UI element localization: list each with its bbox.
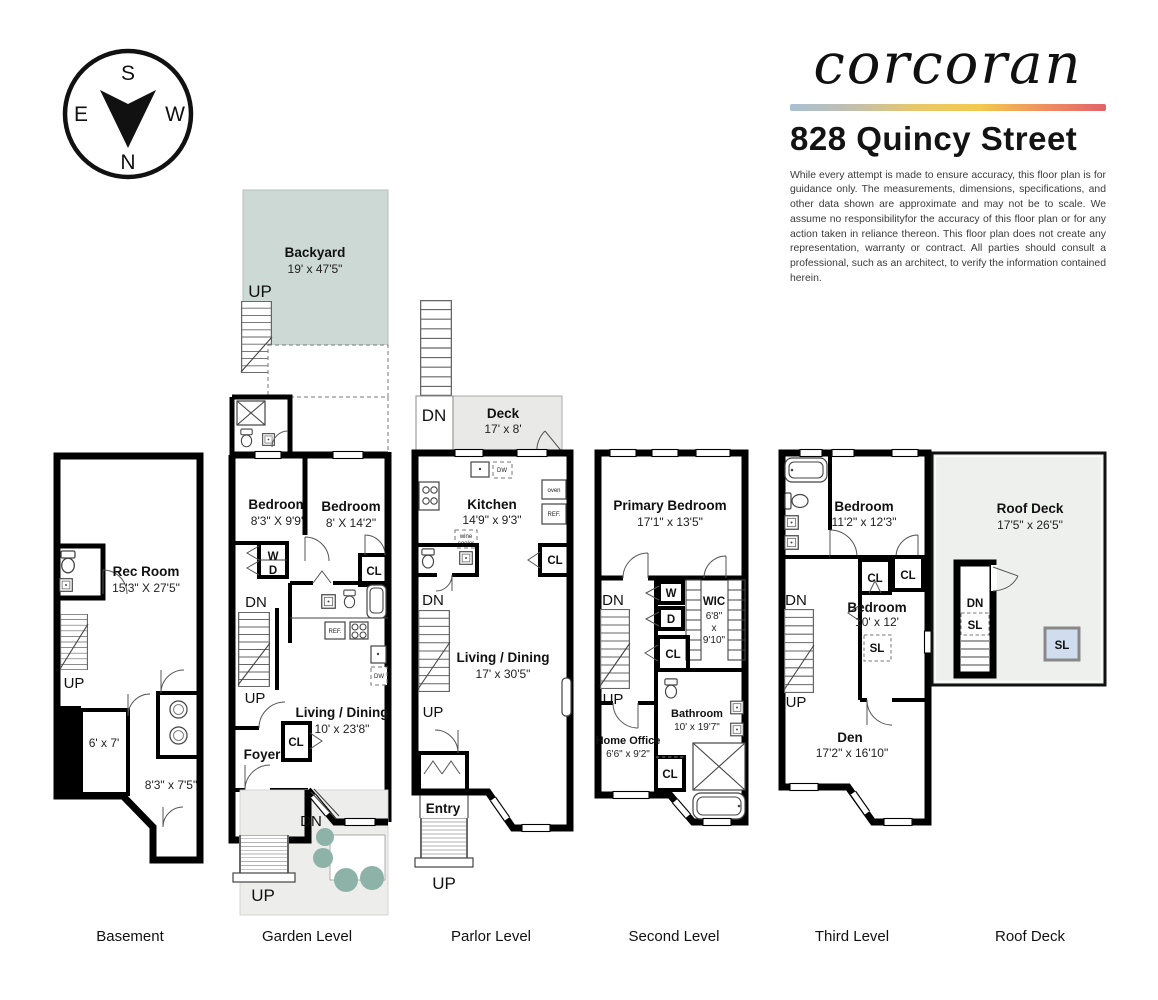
room-label-foyer: Foyer bbox=[244, 747, 282, 762]
room-dims-rec-room: 15'3" X 27'5" bbox=[112, 581, 180, 595]
room-dims-living: 10' x 23'8" bbox=[315, 722, 370, 736]
window bbox=[800, 450, 822, 457]
room-dims-83x75: 8'3" x 7'5" bbox=[145, 778, 197, 792]
compass-west: W bbox=[165, 103, 185, 126]
closet-label: CL bbox=[288, 737, 303, 749]
deck-stairs bbox=[420, 301, 452, 396]
dryer-label: D bbox=[269, 565, 277, 577]
stairs-dn-label: DN bbox=[300, 813, 322, 830]
closet-label: CL bbox=[547, 555, 562, 567]
compass-rose: S E W N bbox=[58, 44, 198, 184]
wic-dim1: 6'8" bbox=[706, 611, 723, 622]
room-dims-living: 17' x 30'5" bbox=[476, 667, 531, 681]
floor-title-third: Third Level bbox=[767, 928, 937, 945]
window bbox=[884, 819, 912, 826]
window bbox=[333, 452, 363, 459]
closet-label: CL bbox=[366, 566, 381, 578]
room-label-living: Living / Dining bbox=[296, 705, 389, 720]
room-dims-home-office: 6'6" x 9'2" bbox=[606, 749, 650, 760]
room-dims-6x7: 6' x 7' bbox=[89, 736, 120, 750]
window bbox=[455, 450, 483, 457]
floor-title-parlor: Parlor Level bbox=[406, 928, 576, 945]
stairs-dn-label: DN bbox=[785, 592, 807, 609]
window bbox=[517, 450, 547, 457]
stairs-up-label: UP bbox=[423, 704, 444, 721]
room-label-backyard: Backyard bbox=[285, 245, 346, 260]
backyard-stairs bbox=[241, 301, 272, 372]
room-label-deck: Deck bbox=[487, 406, 520, 421]
skylight-label: SL bbox=[968, 620, 983, 632]
page-title: 828 Quincy Street bbox=[790, 120, 1106, 158]
dishwasher-label: DW bbox=[497, 468, 507, 474]
window bbox=[892, 450, 918, 457]
entry-steps bbox=[233, 835, 295, 882]
room-dims-bedroom2: 10' x 12' bbox=[855, 615, 899, 629]
compass-svg: S E W N bbox=[58, 44, 198, 184]
room-dims-roof-deck: 17'5" x 26'5" bbox=[997, 518, 1063, 532]
deck-outline-above bbox=[268, 345, 388, 397]
floor-title-basement: Basement bbox=[45, 928, 215, 945]
wic-dim2: 9'10" bbox=[703, 635, 726, 646]
stairs-dn-label: DN bbox=[602, 592, 624, 609]
room-dims-bedroom1: 8'3" X 9'9" bbox=[251, 514, 305, 528]
floorplan-garden: Backyard 19' x 47'5" UP Bedroom 8'3" X 9… bbox=[225, 185, 395, 920]
radiator bbox=[562, 678, 571, 716]
room-label-den: Den bbox=[837, 730, 863, 745]
second-stairs bbox=[600, 610, 630, 689]
stairs-up-label: UP bbox=[432, 874, 456, 893]
room-dims-primary: 17'1" x 13'5" bbox=[637, 515, 703, 529]
floorplan-third: Bedroom 11'2" x 12'3" CL CL Bedroom 10' … bbox=[772, 445, 937, 840]
stairs-up-label: UP bbox=[245, 690, 266, 707]
stairs-up-label: UP bbox=[248, 282, 272, 301]
closet-label: CL bbox=[900, 570, 915, 582]
washer-label: W bbox=[666, 588, 677, 600]
brand-gradient-bar bbox=[790, 104, 1106, 111]
basement-stairs bbox=[60, 614, 88, 669]
room-label-entry: Entry bbox=[426, 801, 461, 816]
room-label-bedroom2: Bedroom bbox=[321, 499, 380, 514]
oven-label: oven bbox=[547, 488, 560, 494]
closet-label: CL bbox=[662, 769, 677, 781]
garden-bathroom-rear bbox=[232, 397, 290, 455]
parlor-stairs bbox=[418, 611, 450, 692]
room-label-rec-room: Rec Room bbox=[113, 564, 180, 579]
compass-south: S bbox=[121, 62, 135, 85]
dishwasher-label: DW bbox=[374, 674, 384, 680]
room-dims-bedroom1: 11'2" x 12'3" bbox=[832, 515, 897, 529]
washer-label: W bbox=[268, 551, 279, 563]
floorplan-second: Primary Bedroom 17'1" x 13'5" DN UP W D … bbox=[588, 445, 753, 840]
dryer-label: D bbox=[667, 614, 675, 626]
room-label-kitchen: Kitchen bbox=[467, 497, 517, 512]
stairs-dn-label: DN bbox=[245, 594, 267, 611]
floor-title-roof: Roof Deck bbox=[945, 928, 1115, 945]
room-dims-backyard: 19' x 47'5" bbox=[288, 262, 343, 276]
room-label-bedroom1: Bedroom bbox=[248, 497, 307, 512]
wine-cooler-label1: wine bbox=[459, 534, 473, 540]
stairs-dn-label: DN bbox=[967, 598, 984, 610]
room-label-living: Living / Dining bbox=[457, 650, 550, 665]
room-dims-deck: 17' x 8' bbox=[484, 422, 521, 436]
window bbox=[652, 450, 678, 457]
floorplan-basement: Rec Room 15'3" X 27'5" UP 6' x 7' 8'3" x… bbox=[45, 448, 210, 893]
room-dims-den: 17'2" x 16'10" bbox=[816, 746, 889, 760]
stairs-up-label: UP bbox=[64, 675, 85, 692]
compass-north: N bbox=[120, 151, 135, 174]
floorplan-parlor: DN Deck 17' x 8' DW oven REF. Kitchen 14… bbox=[405, 290, 580, 895]
compass-east: E bbox=[74, 103, 88, 126]
window bbox=[613, 792, 649, 799]
header: corcoran 828 Quincy Street While every a… bbox=[790, 34, 1106, 287]
stairs-up-label: UP bbox=[786, 694, 807, 711]
stairs-dn-label: DN bbox=[422, 406, 447, 425]
basement-solid-wall bbox=[57, 706, 81, 796]
room-label-primary: Primary Bedroom bbox=[613, 498, 726, 513]
door-arc bbox=[245, 765, 270, 790]
garden-stairs bbox=[238, 608, 277, 690]
stairs-dn-label: DN bbox=[422, 592, 444, 609]
window bbox=[610, 450, 636, 457]
closet-label: CL bbox=[665, 649, 680, 661]
room-label-bedroom1: Bedroom bbox=[834, 499, 893, 514]
skylight-label: SL bbox=[1055, 640, 1070, 652]
room-dims-bathroom: 10' x 19'7" bbox=[674, 722, 720, 733]
disclaimer-text: While every attempt is made to ensure ac… bbox=[790, 169, 1106, 287]
closet-label: CL bbox=[867, 573, 882, 585]
window bbox=[522, 825, 550, 832]
wic-label: WIC bbox=[703, 596, 725, 608]
window bbox=[832, 450, 854, 457]
stairs-up-label: UP bbox=[251, 886, 275, 905]
window bbox=[703, 819, 731, 826]
extension-outline-above bbox=[290, 397, 388, 452]
skylight-label: SL bbox=[870, 643, 885, 655]
floor-title-second: Second Level bbox=[589, 928, 759, 945]
window bbox=[255, 452, 281, 459]
floor-title-garden: Garden Level bbox=[222, 928, 392, 945]
room-label-home-office: Home Office bbox=[596, 735, 661, 747]
room-label-bathroom: Bathroom bbox=[671, 708, 723, 720]
room-dims-bedroom2: 8' X 14'2" bbox=[326, 516, 376, 530]
room-label-roof-deck: Roof Deck bbox=[997, 501, 1064, 516]
wic-x: x bbox=[712, 623, 717, 634]
fridge-label: REF. bbox=[328, 629, 341, 635]
floorplan-roof: Roof Deck 17'5" x 26'5" DN SL SL bbox=[922, 445, 1112, 693]
room-label-bedroom2: Bedroom bbox=[847, 600, 906, 615]
window bbox=[696, 450, 730, 457]
window bbox=[345, 819, 375, 826]
fridge-label: REF. bbox=[547, 512, 560, 518]
third-stairs bbox=[784, 610, 814, 693]
window bbox=[790, 784, 818, 791]
room-dims-kitchen: 14'9" x 9'3" bbox=[462, 513, 521, 527]
door-arc bbox=[305, 537, 329, 561]
brand-logo: corcoran bbox=[790, 34, 1106, 96]
